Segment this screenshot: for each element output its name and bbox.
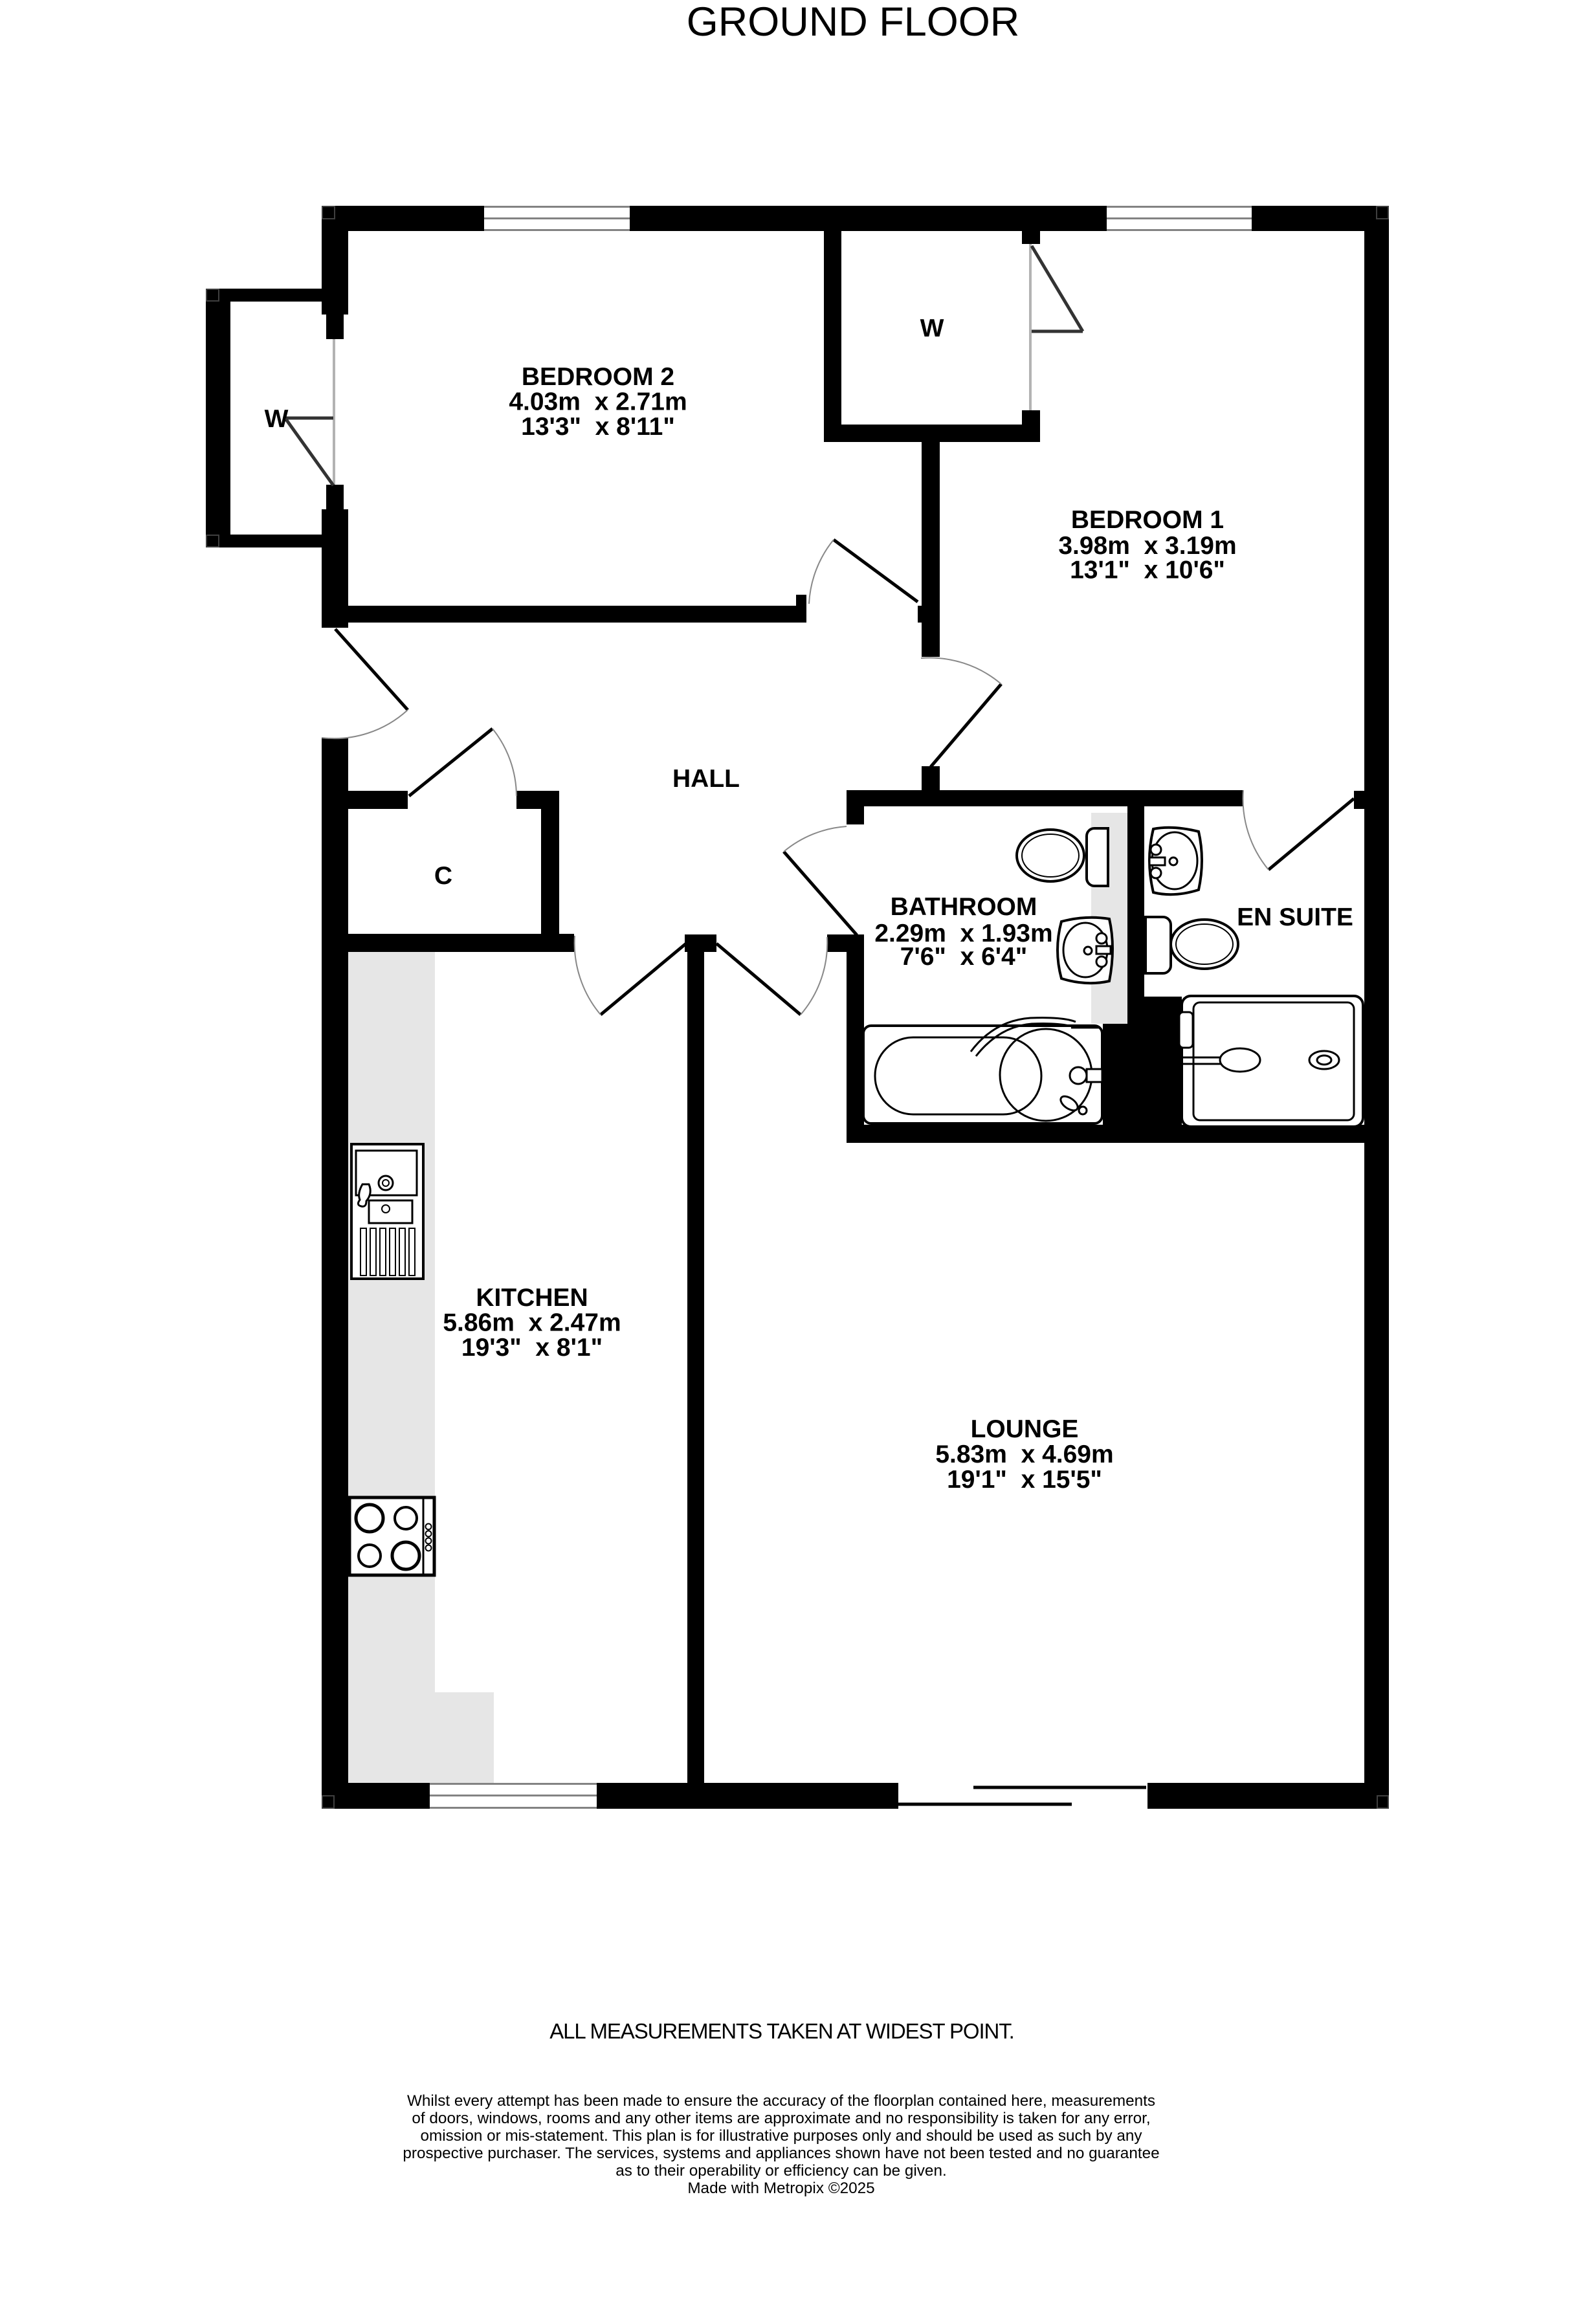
svg-text:13'3" x 8'11": 13'3" x 8'11" bbox=[521, 413, 675, 441]
svg-text:13'1" x 10'6": 13'1" x 10'6" bbox=[1070, 557, 1225, 584]
svg-text:BEDROOM 1: BEDROOM 1 bbox=[1071, 506, 1224, 534]
svg-text:KITCHEN: KITCHEN bbox=[476, 1284, 588, 1312]
svg-text:GROUND FLOOR: GROUND FLOOR bbox=[687, 0, 1020, 45]
svg-text:of doors, windows, rooms and a: of doors, windows, rooms and any other i… bbox=[412, 2110, 1150, 2127]
svg-text:C: C bbox=[434, 862, 452, 890]
svg-text:Whilst every attempt has been: Whilst every attempt has been made to en… bbox=[407, 2092, 1155, 2110]
svg-text:BEDROOM 2: BEDROOM 2 bbox=[522, 363, 674, 391]
svg-text:5.86m x 2.47m: 5.86m x 2.47m bbox=[443, 1309, 621, 1337]
svg-text:BATHROOM: BATHROOM bbox=[891, 893, 1037, 921]
svg-text:W: W bbox=[265, 405, 289, 433]
svg-text:prospective purchaser. The ser: prospective purchaser. The services, sys… bbox=[403, 2145, 1159, 2162]
svg-text:ALL MEASUREMENTS TAKEN AT WIDE: ALL MEASUREMENTS TAKEN AT WIDEST POINT. bbox=[549, 2019, 1014, 2043]
svg-text:19'3" x 8'1": 19'3" x 8'1" bbox=[461, 1334, 603, 1362]
svg-text:LOUNGE: LOUNGE bbox=[971, 1415, 1079, 1443]
svg-text:omission or mis-statement. Thi: omission or mis-statement. This plan is … bbox=[420, 2127, 1142, 2145]
svg-text:5.83m x 4.69m: 5.83m x 4.69m bbox=[935, 1441, 1113, 1468]
svg-text:W: W bbox=[920, 315, 944, 342]
svg-text:as to their operability or eff: as to their operability or efficiency ca… bbox=[615, 2162, 946, 2180]
svg-text:4.03m x 2.71m: 4.03m x 2.71m bbox=[509, 388, 687, 416]
svg-text:HALL: HALL bbox=[672, 765, 740, 793]
svg-text:7'6" x 6'4": 7'6" x 6'4" bbox=[900, 943, 1028, 971]
svg-text:19'1" x 15'5": 19'1" x 15'5" bbox=[947, 1466, 1102, 1494]
svg-text:EN SUITE: EN SUITE bbox=[1237, 903, 1353, 931]
svg-text:Made with Metropix ©2025: Made with Metropix ©2025 bbox=[687, 2180, 874, 2197]
